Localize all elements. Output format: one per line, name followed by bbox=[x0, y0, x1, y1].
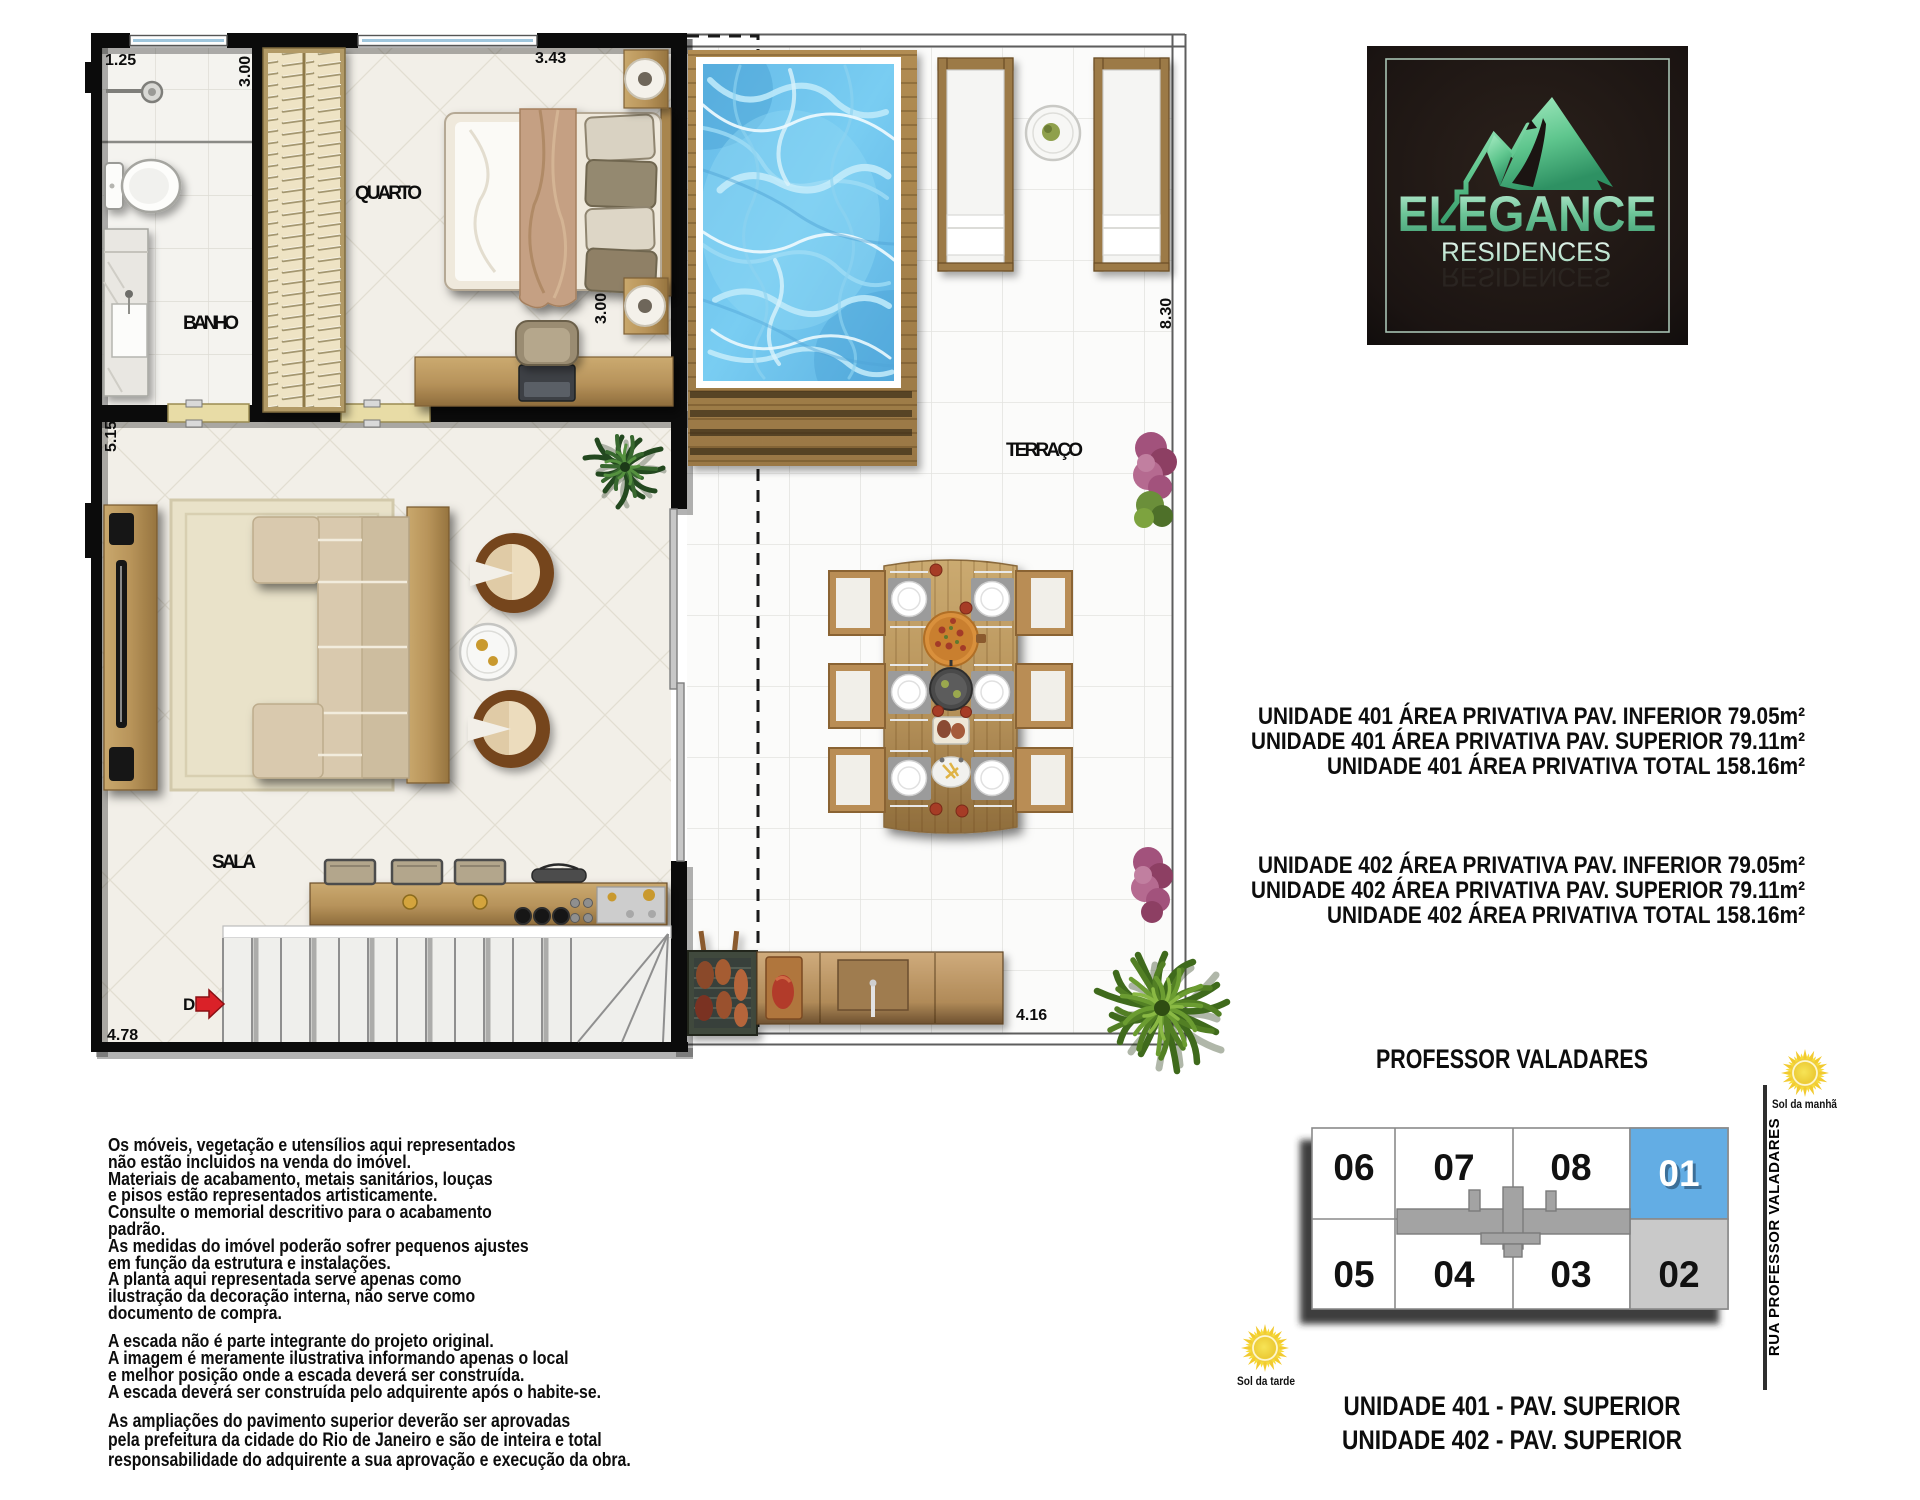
svg-text:3.43: 3.43 bbox=[535, 50, 566, 67]
svg-text:BANHO: BANHO bbox=[183, 313, 240, 334]
svg-text:3.00: 3.00 bbox=[237, 56, 254, 87]
svg-text:5.15: 5.15 bbox=[103, 421, 120, 452]
svg-text:01: 01 bbox=[1658, 1153, 1699, 1194]
svg-text:UNIDADE 402 ÁREA PRIVATIVA PAV: UNIDADE 402 ÁREA PRIVATIVA PAV. SUPERIOR… bbox=[1251, 876, 1805, 904]
svg-text:TERRAÇO: TERRAÇO bbox=[1006, 440, 1084, 461]
svg-text:1.25: 1.25 bbox=[105, 52, 136, 69]
svg-text:Sol da tarde: Sol da tarde bbox=[1237, 1374, 1295, 1388]
svg-text:04: 04 bbox=[1433, 1254, 1475, 1295]
svg-text:4.16: 4.16 bbox=[1016, 1007, 1047, 1024]
svg-text:8.30: 8.30 bbox=[1158, 298, 1175, 329]
svg-text:RUA PROFESSOR VALADARES: RUA PROFESSOR VALADARES bbox=[1766, 1118, 1783, 1356]
svg-text:PROFESSOR VALADARES: PROFESSOR VALADARES bbox=[1376, 1044, 1648, 1074]
svg-text:06: 06 bbox=[1333, 1147, 1374, 1188]
svg-text:QUARTO: QUARTO bbox=[355, 183, 423, 204]
svg-text:UNIDADE 402 ÁREA PRIVATIVA PAV: UNIDADE 402 ÁREA PRIVATIVA PAV. INFERIOR… bbox=[1258, 851, 1805, 879]
svg-text:UNIDADE 401 - PAV. SUPERIOR: UNIDADE 401 - PAV. SUPERIOR bbox=[1344, 1391, 1681, 1421]
svg-text:07: 07 bbox=[1433, 1147, 1474, 1188]
svg-text:08: 08 bbox=[1550, 1147, 1591, 1188]
svg-text:UNIDADE 402 - PAV. SUPERIOR: UNIDADE 402 - PAV. SUPERIOR bbox=[1342, 1425, 1682, 1455]
svg-text:4.78: 4.78 bbox=[107, 1027, 138, 1044]
svg-text:UNIDADE 402 ÁREA PRIVATIVA TOT: UNIDADE 402 ÁREA PRIVATIVA TOTAL 158.16m… bbox=[1327, 901, 1805, 929]
svg-text:RESIDENCES: RESIDENCES bbox=[1441, 262, 1611, 292]
svg-text:D: D bbox=[183, 995, 195, 1014]
svg-text:03: 03 bbox=[1550, 1254, 1591, 1295]
svg-text:UNIDADE 401 ÁREA PRIVATIVA PAV: UNIDADE 401 ÁREA PRIVATIVA PAV. SUPERIOR… bbox=[1251, 727, 1805, 755]
svg-text:UNIDADE 401 ÁREA PRIVATIVA TOT: UNIDADE 401 ÁREA PRIVATIVA TOTAL 158.16m… bbox=[1327, 752, 1805, 780]
svg-text:UNIDADE 401 ÁREA PRIVATIVA PAV: UNIDADE 401 ÁREA PRIVATIVA PAV. INFERIOR… bbox=[1258, 702, 1805, 730]
svg-text:SALA: SALA bbox=[212, 852, 257, 873]
svg-text:3.00: 3.00 bbox=[593, 293, 610, 324]
svg-text:05: 05 bbox=[1333, 1254, 1374, 1295]
svg-text:ELEGANCE: ELEGANCE bbox=[1398, 186, 1657, 242]
svg-text:Sol da manhã: Sol da manhã bbox=[1772, 1097, 1837, 1111]
svg-text:02: 02 bbox=[1658, 1254, 1699, 1295]
